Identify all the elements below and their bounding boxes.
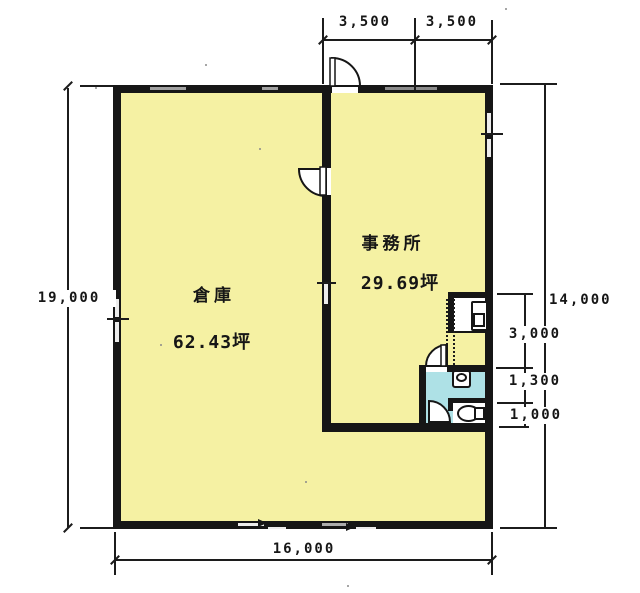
- scan-speck: [259, 148, 261, 150]
- window-slot: [324, 284, 328, 304]
- sliding-door-panel: [322, 523, 348, 526]
- scan-speck: [160, 344, 162, 346]
- urinal-bowl-icon: [473, 313, 485, 327]
- window-slot: [115, 322, 119, 342]
- toilet-door-arc-icon: [427, 399, 452, 424]
- extension-tick: [496, 367, 533, 369]
- dimension-right-1300: 1,300: [505, 373, 565, 390]
- extension-line: [500, 83, 557, 85]
- wall-joint-tick: [107, 318, 129, 320]
- scan-speck: [505, 8, 507, 10]
- dimension-right-3000: 3,000: [505, 326, 565, 343]
- window-slot: [487, 139, 491, 157]
- wall-joint-tick: [317, 282, 336, 284]
- dimension-left: 19,000: [22, 290, 116, 307]
- extension-line: [491, 532, 493, 575]
- extension-tick: [497, 293, 533, 295]
- top-dimension-line: [322, 39, 493, 41]
- wall-office-bottom: [322, 423, 493, 432]
- sliding-door-panel: [356, 527, 376, 530]
- extension-line: [114, 532, 116, 575]
- scan-speck: [305, 481, 307, 483]
- sliding-door-panel: [268, 527, 286, 530]
- entry-door-arc-icon: [329, 57, 361, 88]
- dimension-right-1000: 1,000: [504, 407, 568, 424]
- window-slot: [487, 113, 491, 134]
- floor-plan-canvas: 倉庫 62.43坪 事務所 29.69坪 3,500 3,500 19,000 …: [0, 0, 640, 593]
- dimension-top-right: 3,500: [410, 14, 494, 31]
- toilet-tank-icon: [474, 407, 485, 420]
- wall-washroom-left: [419, 365, 426, 431]
- window-slot: [262, 87, 278, 90]
- window-slot: [150, 87, 186, 90]
- extension-tick: [499, 426, 529, 428]
- warehouse-label: 倉庫: [178, 281, 250, 306]
- dimension-right-outer: 14,000: [549, 292, 633, 309]
- extension-line: [80, 527, 113, 529]
- right-outer-dimension-line: [544, 83, 546, 528]
- office-area-label: 29.69坪: [356, 269, 444, 295]
- warehouse-area-label: 62.43坪: [166, 328, 258, 354]
- scan-speck: [205, 64, 207, 66]
- wall-joint-tick: [481, 133, 503, 135]
- dimension-bottom: 16,000: [257, 541, 351, 558]
- building-outline: [113, 85, 493, 529]
- sliding-door-arrow-icon: [258, 519, 267, 527]
- scan-speck: [347, 585, 349, 587]
- sliding-door-arrow-icon: [346, 523, 355, 531]
- left-dimension-line: [67, 88, 69, 528]
- wall-divider-office: [322, 85, 331, 431]
- bottom-dimension-line: [115, 559, 493, 561]
- dimension-top-left: 3,500: [323, 14, 407, 31]
- office-label: 事務所: [361, 229, 425, 254]
- basin-bowl-icon: [456, 373, 467, 382]
- window-slot: [385, 87, 437, 90]
- washroom-door-arc-icon: [424, 343, 449, 368]
- alcove-counter-edge: [454, 331, 485, 333]
- extension-line: [500, 527, 557, 529]
- interior-door-arc-icon: [296, 166, 328, 198]
- scan-speck: [95, 87, 97, 89]
- extension-tick: [497, 402, 533, 404]
